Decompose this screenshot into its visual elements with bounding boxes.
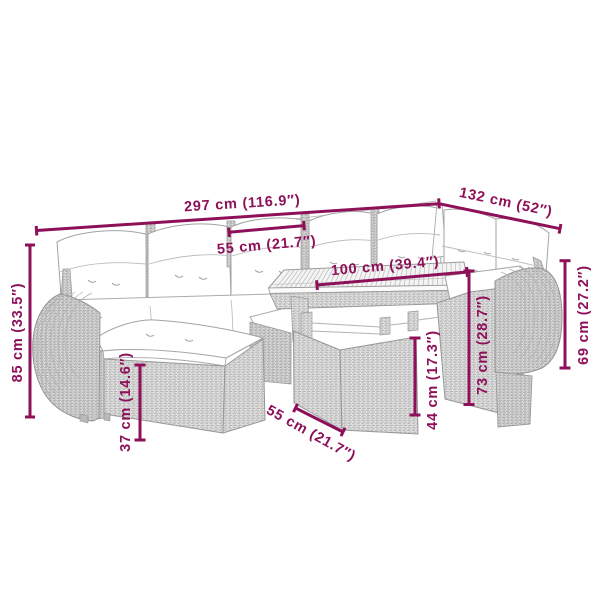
svg-text:69 cm (27.2″): 69 cm (27.2″)	[576, 265, 592, 365]
svg-text:37 cm (14.6″): 37 cm (14.6″)	[118, 352, 134, 452]
svg-text:73 cm (28.7″): 73 cm (28.7″)	[475, 295, 491, 395]
svg-text:44 cm (17.3″): 44 cm (17.3″)	[425, 330, 441, 430]
svg-text:85 cm (33.5″): 85 cm (33.5″)	[10, 283, 26, 383]
